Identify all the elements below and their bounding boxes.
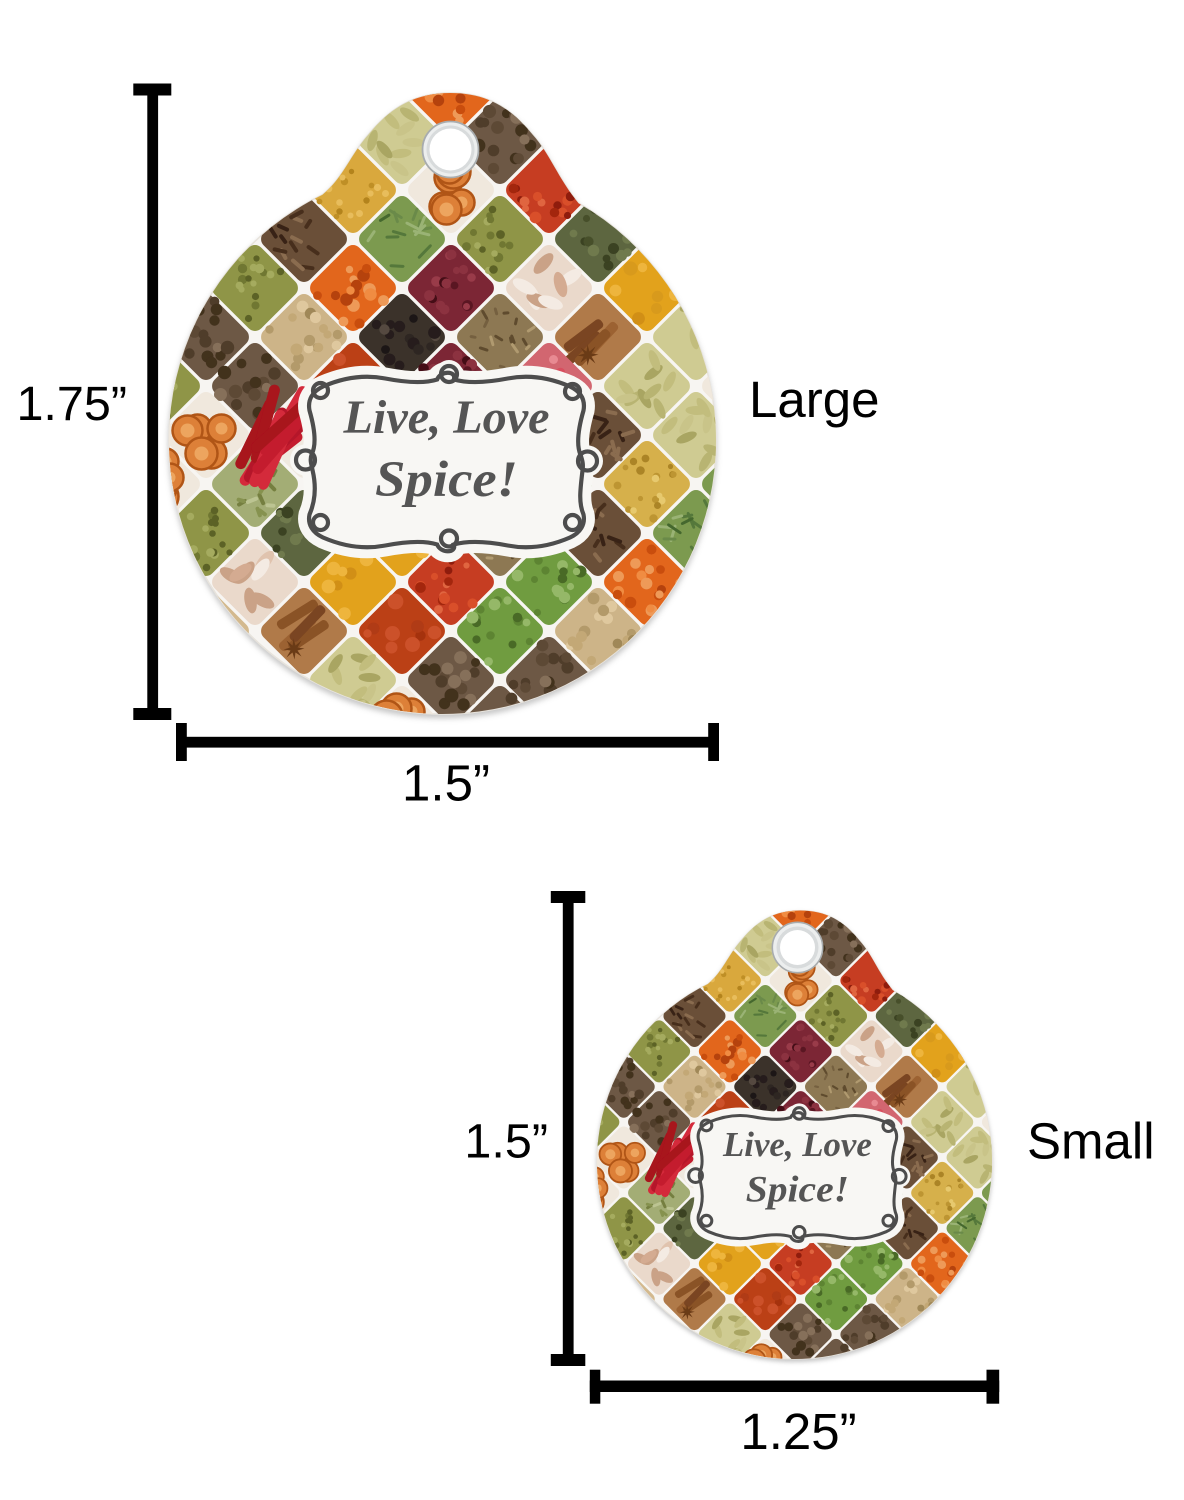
svg-text:Large: Large [749, 371, 879, 428]
svg-text:Small: Small [1027, 1113, 1155, 1170]
svg-text:Live, Love: Live, Love [722, 1126, 872, 1164]
svg-text:1.25”: 1.25” [740, 1403, 856, 1460]
svg-text:1.75”: 1.75” [16, 377, 127, 431]
svg-text:Spice!: Spice! [746, 1169, 849, 1210]
svg-text:1.5”: 1.5” [464, 1115, 548, 1169]
svg-text:Spice!: Spice! [375, 452, 518, 508]
svg-text:1.5”: 1.5” [402, 755, 490, 812]
svg-text:Live, Love: Live, Love [342, 391, 549, 444]
